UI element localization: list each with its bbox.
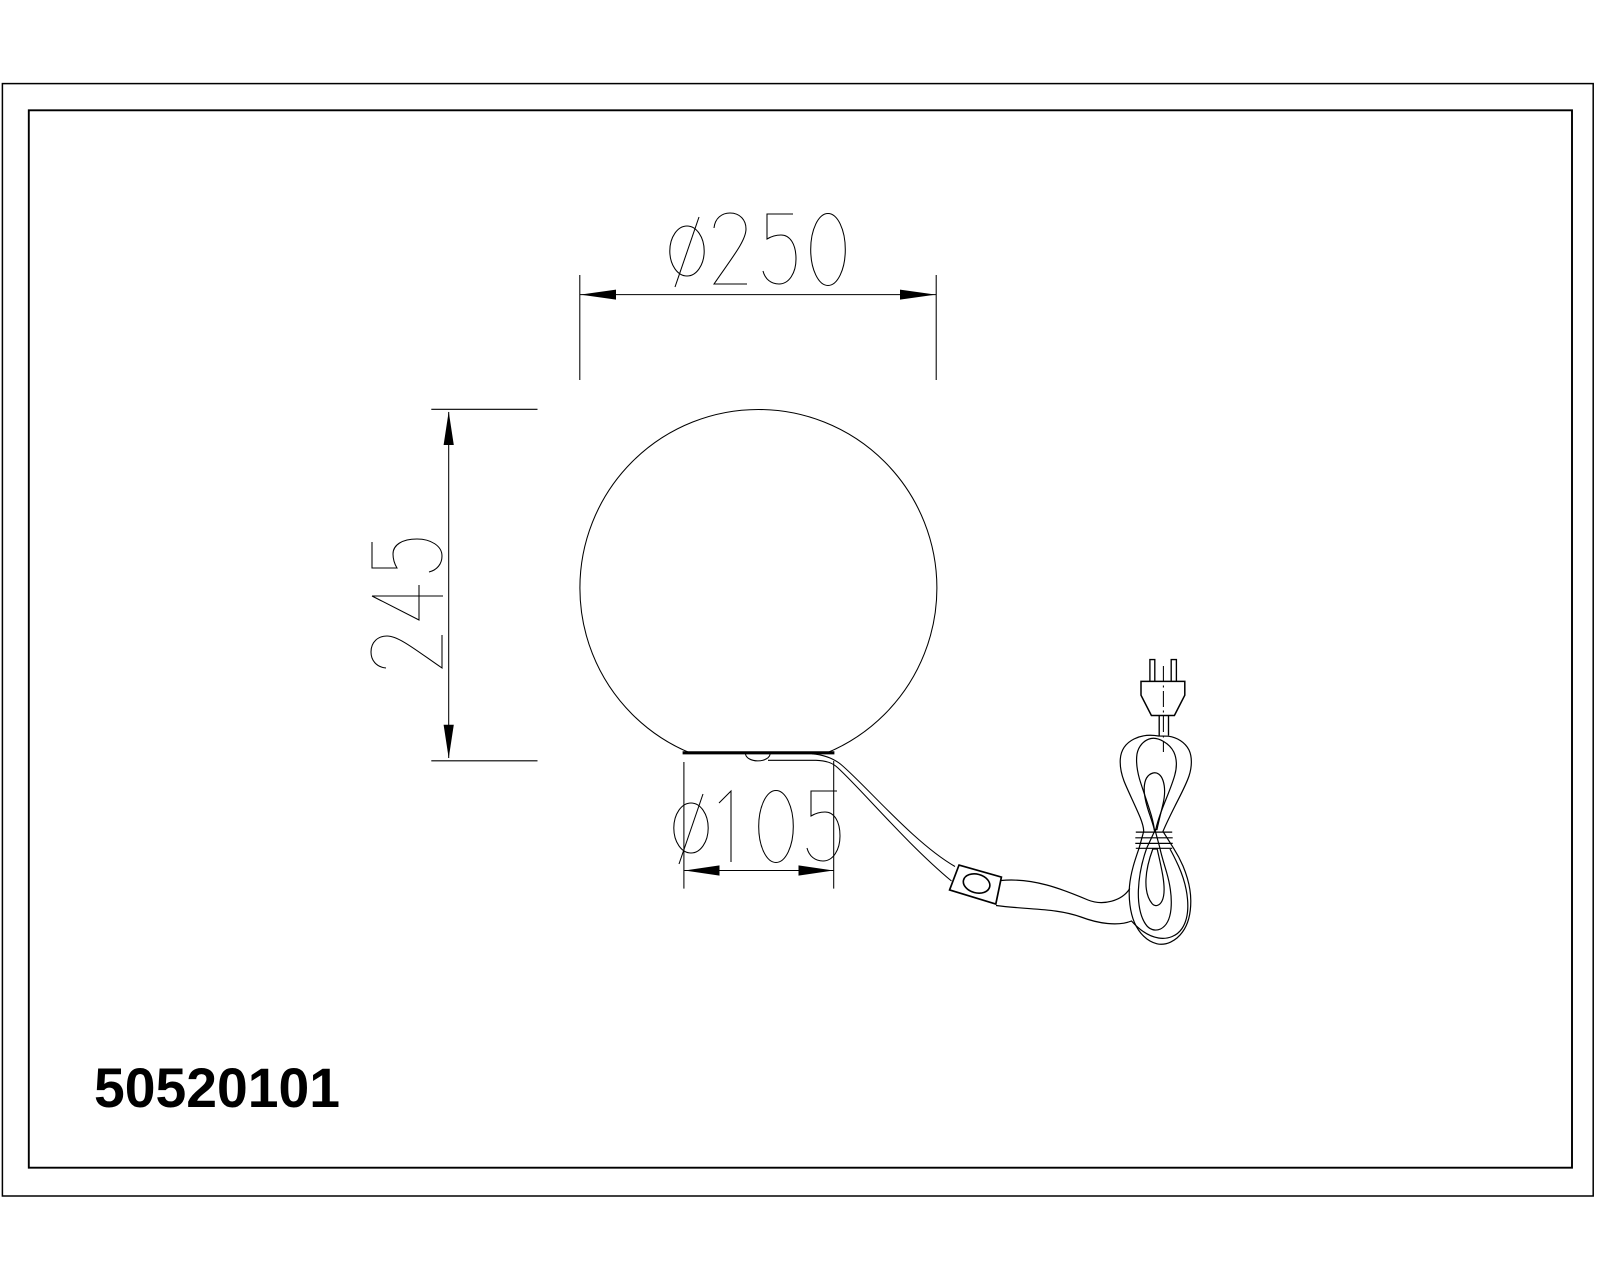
svg-text:50520101: 50520101 — [94, 1057, 340, 1119]
